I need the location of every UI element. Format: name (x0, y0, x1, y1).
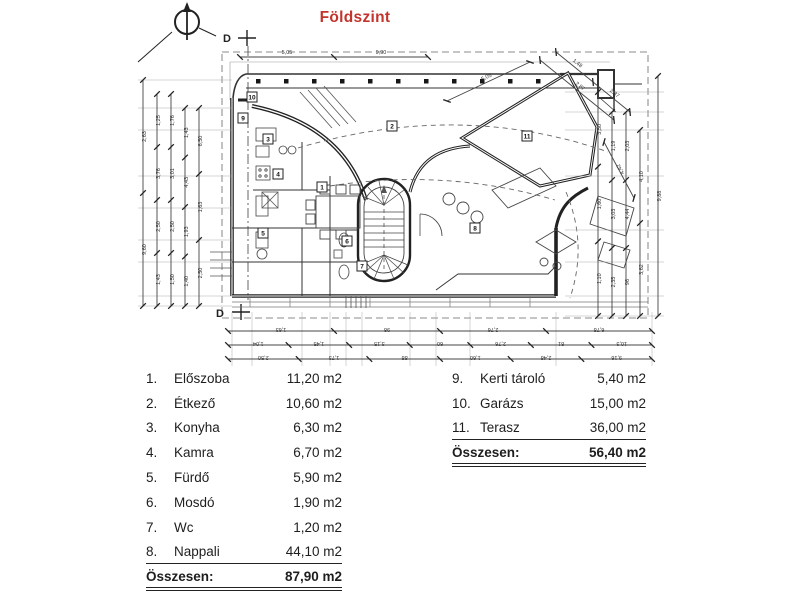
svg-text:2: 2 (390, 123, 394, 130)
svg-text:96: 96 (625, 279, 631, 285)
svg-text:2,50: 2,50 (156, 221, 162, 232)
room-number: 3. (146, 420, 174, 435)
room-marker: 11 (522, 131, 532, 141)
svg-text:4,10: 4,10 (639, 171, 645, 182)
room-area: 10,60 m2 (270, 396, 342, 411)
room-number: 9. (452, 371, 480, 386)
svg-text:2,50: 2,50 (170, 221, 176, 232)
room-list-left: 1.Előszoba11,20 m22.Étkező10,60 m23.Kony… (146, 366, 342, 591)
fence-dots (256, 79, 541, 84)
svg-text:4: 4 (276, 171, 280, 178)
svg-text:10,3: 10,3 (616, 340, 627, 346)
room-area: 5,90 m2 (270, 470, 342, 485)
svg-text:1,04: 1,04 (253, 340, 264, 346)
svg-text:1,63: 1,63 (198, 202, 204, 213)
room-area: 5,40 m2 (574, 371, 646, 386)
room-number: 6. (146, 495, 174, 510)
legend-row: 10.Garázs15,00 m2 (452, 391, 646, 416)
svg-text:1,25: 1,25 (156, 115, 162, 126)
room-number-markers: 1234567891011 (238, 92, 532, 271)
room-marker: 8 (470, 223, 480, 233)
extension-lines (138, 80, 664, 366)
svg-text:1,10: 1,10 (597, 273, 603, 284)
svg-text:88: 88 (402, 354, 408, 360)
svg-text:2,63: 2,63 (142, 131, 148, 142)
legend-row: 8.Nappali44,10 m2 (146, 540, 342, 564)
room-number: 8. (146, 544, 174, 559)
room-list-right: 9.Kerti tároló5,40 m210.Garázs15,00 m211… (452, 366, 646, 467)
svg-text:1,45: 1,45 (313, 340, 324, 346)
room-name: Fürdő (174, 470, 270, 485)
svg-text:3,50: 3,50 (597, 124, 603, 135)
svg-text:9: 9 (241, 115, 245, 122)
svg-text:9,90: 9,90 (376, 50, 387, 56)
room-name: Kamra (174, 445, 270, 460)
svg-text:2,03: 2,03 (625, 141, 631, 152)
legend-row: 4.Kamra6,70 m2 (146, 440, 342, 465)
furniture (306, 168, 634, 270)
svg-text:2,76: 2,76 (488, 326, 499, 332)
svg-text:6,78: 6,78 (594, 326, 605, 332)
room-name: Étkező (174, 396, 270, 411)
room-name: Nappali (174, 544, 270, 559)
room-marker: 4 (273, 169, 283, 179)
svg-text:4,42: 4,42 (616, 163, 626, 175)
svg-text:1,48: 1,48 (571, 58, 583, 69)
total-value: 56,40 m2 (574, 445, 646, 460)
room-name: Garázs (480, 396, 574, 411)
room-area: 15,00 m2 (574, 396, 646, 411)
room-area: 1,90 m2 (270, 495, 342, 510)
room-area: 1,20 m2 (270, 520, 342, 535)
svg-text:2,76: 2,76 (495, 340, 506, 346)
svg-text:6: 6 (345, 238, 349, 245)
room-number: 7. (146, 520, 174, 535)
svg-text:5: 5 (261, 230, 265, 237)
room-number: 10. (452, 396, 480, 411)
room-name: Mosdó (174, 495, 270, 510)
svg-text:6,50: 6,50 (198, 136, 204, 147)
room-area: 44,10 m2 (270, 544, 342, 559)
room-marker: 3 (263, 134, 273, 144)
legend-row: 11.Terasz36,00 m2 (452, 416, 646, 440)
room-marker: 1 (317, 182, 327, 192)
svg-text:D: D (216, 308, 224, 320)
room-number: 11. (452, 420, 480, 435)
svg-text:2,50: 2,50 (198, 268, 204, 279)
room-marker: 2 (387, 121, 397, 131)
total-label: Összesen: (146, 569, 270, 584)
room-marker: 9 (238, 113, 248, 123)
room-name: Wc (174, 520, 270, 535)
legend-row: 1.Előszoba11,20 m2 (146, 366, 342, 391)
svg-text:1,43: 1,43 (184, 127, 190, 138)
svg-text:7: 7 (360, 263, 364, 270)
room-marker: 10 (247, 92, 257, 102)
room-area: 36,00 m2 (574, 420, 646, 435)
room-name: Terasz (480, 420, 574, 435)
room-name: Konyha (174, 420, 270, 435)
total-label: Összesen: (452, 445, 574, 460)
svg-text:11: 11 (524, 133, 531, 140)
svg-text:1,19: 1,19 (611, 141, 617, 152)
legend-row: 9.Kerti tároló5,40 m2 (452, 366, 646, 391)
svg-text:2,48: 2,48 (541, 354, 552, 360)
svg-text:1,40: 1,40 (184, 276, 190, 287)
legend-total-row: Összesen:56,40 m2 (452, 442, 646, 467)
svg-text:4,43: 4,43 (184, 177, 190, 188)
legend-row: 6.Mosdó1,90 m2 (146, 490, 342, 515)
floor-plan-drawing: D D (0, 0, 800, 372)
svg-text:60: 60 (437, 340, 443, 346)
svg-text:8: 8 (473, 225, 477, 232)
svg-text:1,43: 1,43 (156, 274, 162, 285)
section-marker-top: D (223, 30, 256, 46)
svg-text:2,35: 2,35 (611, 277, 617, 288)
svg-text:4,44: 4,44 (625, 209, 631, 220)
legend-row: 2.Étkező10,60 m2 (146, 391, 342, 416)
total-value: 87,90 m2 (270, 569, 342, 584)
svg-text:5,05: 5,05 (282, 50, 293, 56)
room-marker: 5 (258, 228, 268, 238)
svg-text:2,87: 2,87 (574, 81, 586, 92)
svg-text:1,63: 1,63 (276, 326, 287, 332)
svg-text:1,50: 1,50 (170, 274, 176, 285)
svg-text:D: D (223, 33, 231, 45)
svg-text:9,16: 9,16 (611, 354, 622, 360)
svg-text:3,76: 3,76 (156, 168, 162, 179)
svg-text:1,60: 1,60 (470, 354, 481, 360)
room-marker: 7 (357, 261, 367, 271)
room-number: 5. (146, 470, 174, 485)
north-arrow-icon (138, 2, 216, 62)
legend-row: 7.Wc1,20 m2 (146, 515, 342, 540)
svg-text:3,15: 3,15 (374, 340, 385, 346)
legend-total-row: Összesen:87,90 m2 (146, 566, 342, 591)
room-name: Kerti tároló (480, 371, 574, 386)
room-number: 1. (146, 371, 174, 386)
room-area: 6,70 m2 (270, 445, 342, 460)
svg-text:9,60: 9,60 (142, 244, 148, 255)
svg-text:9,88: 9,88 (657, 191, 663, 202)
svg-text:1,60: 1,60 (597, 199, 603, 210)
room-area: 11,20 m2 (270, 371, 342, 386)
svg-text:1,73: 1,73 (329, 354, 340, 360)
svg-text:98: 98 (384, 326, 390, 332)
room-area: 6,30 m2 (270, 420, 342, 435)
svg-text:1,76: 1,76 (170, 115, 176, 126)
legend-row: 5.Fürdő5,90 m2 (146, 465, 342, 490)
svg-text:3: 3 (266, 136, 270, 143)
svg-text:3,01: 3,01 (170, 168, 176, 179)
legend-row: 3.Konyha6,30 m2 (146, 416, 342, 441)
room-name: Előszoba (174, 371, 270, 386)
svg-text:1: 1 (320, 184, 324, 191)
svg-text:2,50: 2,50 (258, 354, 269, 360)
svg-text:3,62: 3,62 (639, 264, 645, 275)
svg-text:81: 81 (558, 340, 564, 346)
fixtures (256, 128, 442, 279)
svg-text:10: 10 (248, 94, 256, 101)
svg-text:1,93: 1,93 (184, 226, 190, 237)
room-marker: 6 (342, 236, 352, 246)
room-number: 4. (146, 445, 174, 460)
room-number: 2. (146, 396, 174, 411)
svg-text:3,03: 3,03 (611, 209, 617, 220)
